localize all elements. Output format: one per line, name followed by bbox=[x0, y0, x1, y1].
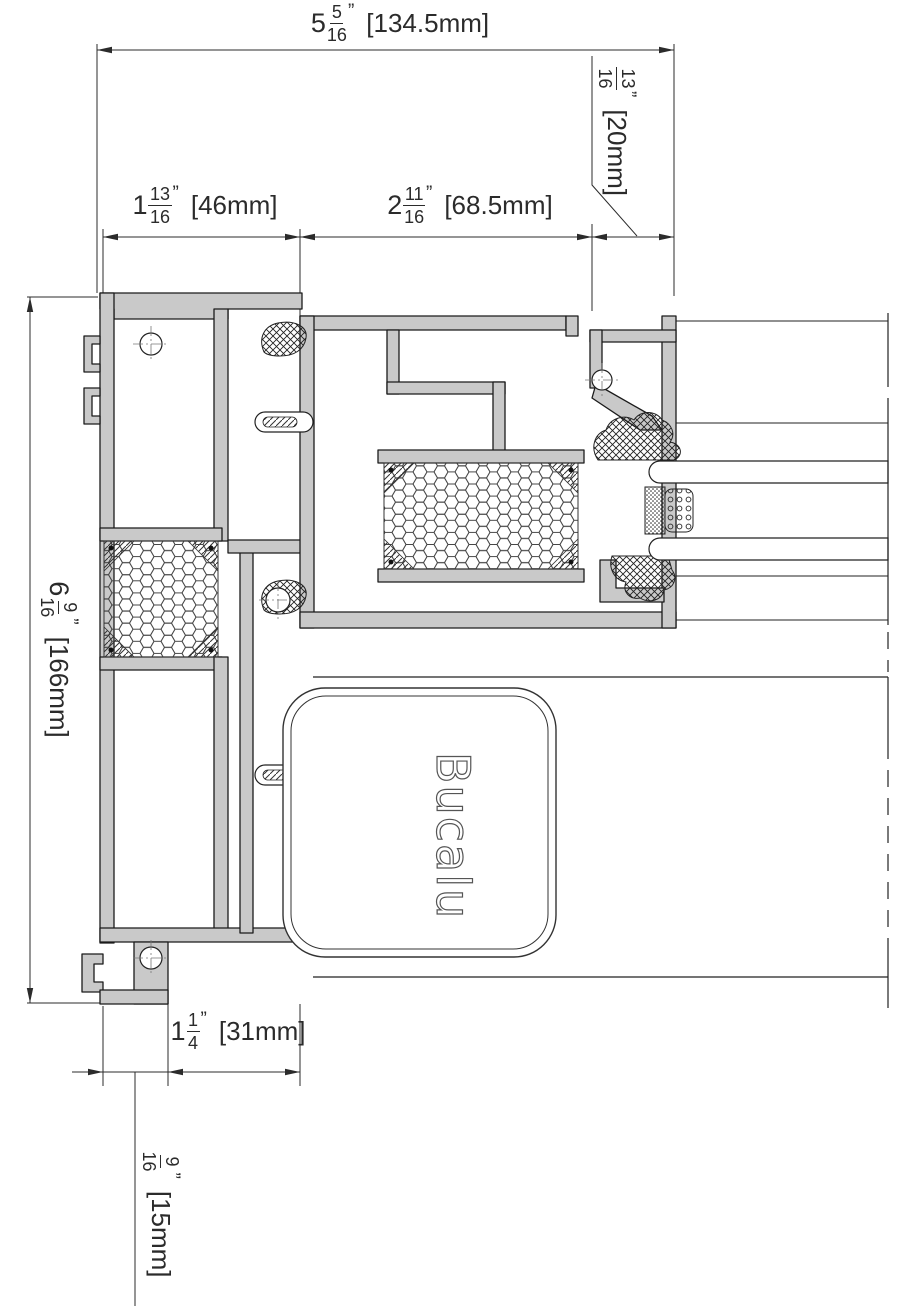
dim-fraction: 516 bbox=[327, 3, 347, 44]
desiccant-strip bbox=[665, 489, 693, 532]
dim-bottom-width: 114”[31mm] bbox=[168, 1008, 308, 1054]
dim-whole: 5 bbox=[311, 10, 326, 37]
dim-frame-depth: 11316”[46mm] bbox=[105, 182, 305, 228]
dim-foot-width: 916”[15mm] bbox=[138, 1126, 184, 1302]
technical-drawing-canvas: Bucalu 5516”[134.5mm] 1316”[20mm] 11316”… bbox=[0, 0, 913, 1308]
brand-logo-text: Bucalu bbox=[426, 752, 480, 920]
spacer-bar bbox=[645, 487, 665, 534]
dim-sash-depth: 21116”[68.5mm] bbox=[350, 182, 590, 228]
dim-overall-width: 5516”[134.5mm] bbox=[270, 0, 530, 46]
dim-metric: [134.5mm] bbox=[366, 10, 489, 36]
dim-unit: ” bbox=[348, 2, 354, 21]
thermal-break-sash bbox=[384, 463, 578, 569]
dimension-lines bbox=[27, 44, 674, 1306]
dim-edge-offset: 1316”[20mm] bbox=[594, 56, 640, 206]
handle-plate: Bucalu bbox=[283, 688, 556, 957]
thermal-break-frame bbox=[104, 541, 218, 657]
dim-overall-height: 6916”[166mm] bbox=[36, 562, 82, 757]
